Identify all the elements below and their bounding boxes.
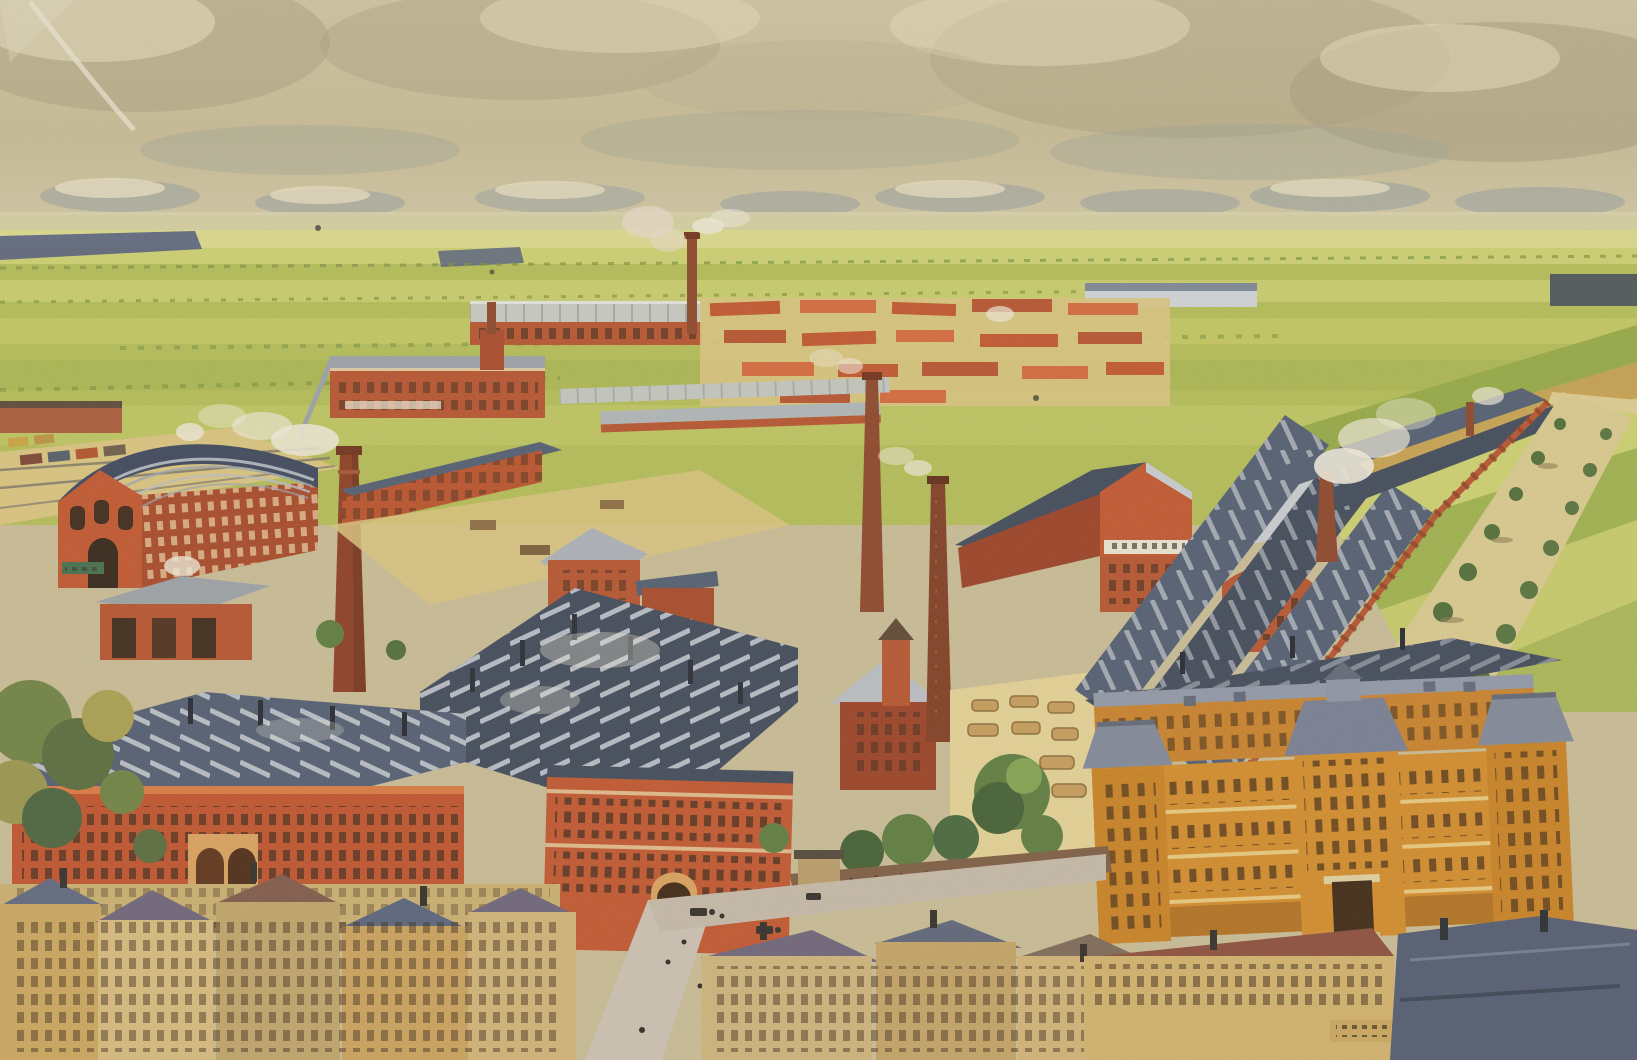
postcard-image	[0, 0, 1637, 1060]
halftone-grain	[0, 0, 1637, 1060]
factory-panorama-illustration	[0, 0, 1637, 1060]
